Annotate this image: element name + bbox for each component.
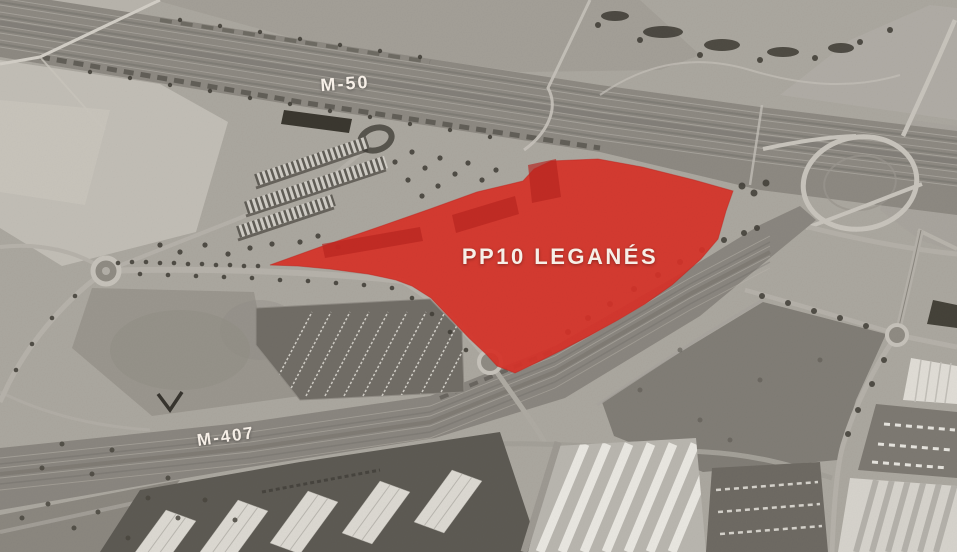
satellite-imagery — [0, 0, 957, 552]
photo-grain-overlay — [0, 0, 957, 552]
highlight-zone-label: PP10 LEGANÉS — [462, 244, 658, 270]
road-label-m50: M-50 — [320, 72, 370, 96]
aerial-map: M-50 M-407 PP10 LEGANÉS — [0, 0, 957, 552]
